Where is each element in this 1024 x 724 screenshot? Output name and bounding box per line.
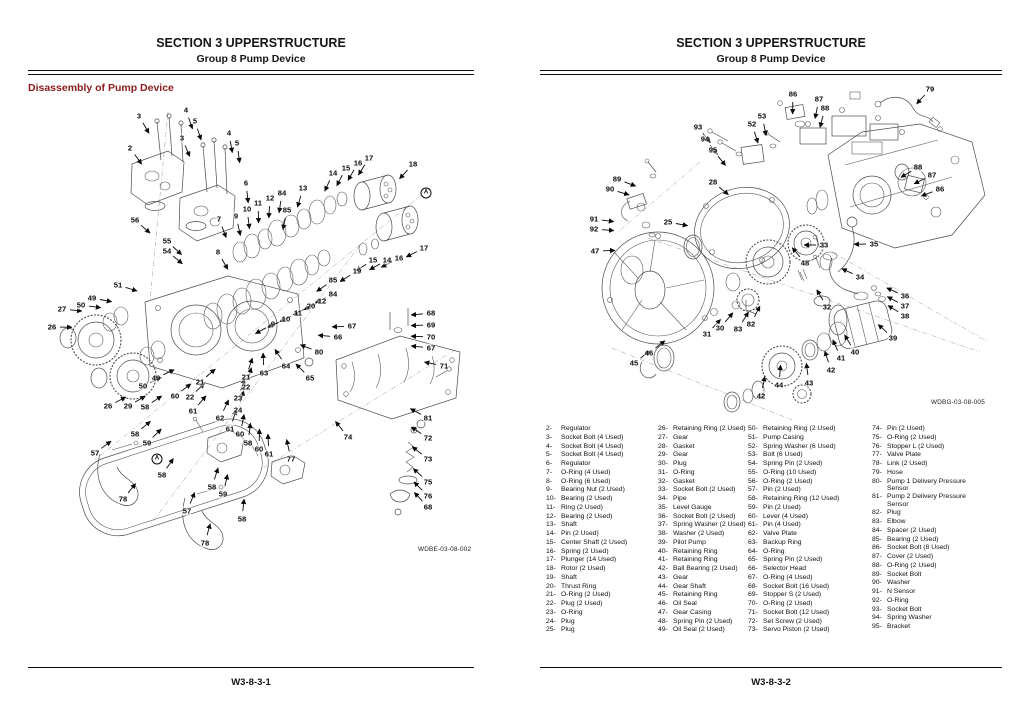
- leader-arrow: [348, 170, 354, 180]
- gear-train-sketch: [724, 225, 832, 412]
- leader-arrow: [381, 262, 392, 268]
- leader-arrow: [141, 421, 150, 429]
- leader-arrow: [780, 365, 781, 377]
- leader-arrow: [150, 378, 161, 383]
- leader-arrow: [887, 288, 898, 293]
- leader-arrow: [214, 468, 218, 480]
- leader-arrow: [317, 285, 327, 292]
- leader-arrow: [414, 482, 422, 490]
- leader-arrow: [206, 369, 215, 377]
- leader-arrow: [141, 225, 150, 233]
- leader-arrow: [280, 316, 291, 321]
- sensor-sketch: [621, 159, 656, 237]
- leader-arrow: [263, 353, 264, 365]
- leader-arrow: [337, 175, 343, 186]
- leader-arrow: [602, 220, 614, 222]
- leader-arrow: [268, 434, 269, 446]
- leader-arrow: [618, 191, 630, 195]
- leader-arrow: [725, 313, 733, 322]
- pump-casing-sketch: [145, 276, 304, 388]
- leader-arrow: [625, 182, 636, 186]
- leader-arrow: [332, 326, 344, 327]
- right-pump-exploded-sketch: [602, 92, 988, 420]
- shaft-assembly-2: [204, 250, 330, 329]
- leader-arrow: [70, 310, 82, 311]
- leader-arrow: [413, 469, 422, 477]
- leader-arrow: [921, 192, 932, 196]
- leader-arrow: [833, 340, 838, 351]
- leader-arrow: [887, 297, 898, 303]
- manual-spread: { "colors": {"heading_red": "#8e1b1b", "…: [0, 0, 1024, 724]
- leader-arrow: [336, 421, 344, 430]
- leader-arrow: [198, 396, 206, 405]
- leader-arrow: [167, 459, 174, 469]
- bracket-bolts-sketch: [708, 129, 780, 165]
- leader-arrow: [356, 264, 366, 270]
- leader-arrow: [269, 206, 270, 218]
- leader-arrow: [713, 319, 721, 328]
- leader-arrow: [223, 400, 228, 411]
- pipe-sketch: [800, 252, 868, 306]
- leader-arrow: [370, 264, 381, 270]
- leader-arrow: [888, 306, 898, 312]
- leader-arrow: [300, 345, 311, 349]
- leader-arrow: [842, 269, 853, 274]
- leader-arrow: [152, 396, 162, 403]
- leader-arrow: [676, 224, 688, 226]
- leader-arrow: [153, 429, 162, 437]
- leader-arrow: [143, 123, 149, 133]
- leader-arrow: [325, 180, 330, 191]
- leader-arrow: [173, 247, 182, 255]
- leader-arrow: [197, 129, 201, 140]
- leader-arrow: [400, 170, 408, 179]
- leader-arrow: [602, 230, 614, 231]
- small-levers-sketch: [193, 417, 305, 484]
- leader-arrow: [406, 252, 417, 257]
- pump-body-sketch: [800, 108, 985, 249]
- leader-arrow: [412, 447, 422, 454]
- leader-arrow: [411, 346, 423, 347]
- leader-arrow: [128, 484, 136, 493]
- leader-arrow: [806, 363, 808, 375]
- leader-arrow: [247, 191, 248, 203]
- leader-arrow: [298, 196, 301, 208]
- leader-arrow: [126, 287, 138, 291]
- leader-arrow: [754, 132, 758, 144]
- leader-arrow: [190, 493, 195, 504]
- leader-arrow: [817, 290, 823, 300]
- leader-arrow: [181, 384, 191, 391]
- gear-casing-sketch: [602, 232, 714, 344]
- leader-arrow: [315, 298, 326, 303]
- leader-arrow: [742, 312, 748, 322]
- leader-arrow: [189, 118, 193, 129]
- leader-arrow: [225, 475, 228, 487]
- rotor-sketch: [354, 175, 418, 255]
- callout-arrows: [60, 95, 933, 535]
- leader-arrow: [185, 145, 190, 156]
- leader-arrow: [242, 414, 244, 426]
- leader-arrow: [815, 107, 817, 119]
- leader-arrow: [358, 165, 364, 175]
- fork-links-sketch: [98, 441, 223, 550]
- leader-arrow: [173, 256, 182, 264]
- gasket-ring-sketch: [70, 410, 277, 545]
- leader-arrow: [340, 275, 350, 281]
- leader-arrow: [411, 314, 423, 315]
- exploded-diagram-sketches: [0, 0, 1024, 724]
- leader-arrow: [207, 524, 210, 536]
- leader-arrow: [222, 259, 228, 269]
- leader-arrow: [248, 217, 250, 229]
- shaft-assembly-1: [233, 192, 347, 262]
- leader-arrow: [411, 336, 423, 337]
- leader-arrow: [718, 156, 726, 165]
- leader-arrow: [710, 145, 718, 154]
- cover-sketches: [778, 101, 929, 200]
- leader-arrow: [287, 440, 290, 452]
- leader-arrow: [243, 499, 244, 511]
- leader-arrow: [238, 224, 241, 236]
- leader-arrow: [878, 325, 887, 333]
- valve-block-sketch: [305, 308, 460, 428]
- leader-arrow: [820, 116, 823, 128]
- leader-arrow: [238, 151, 240, 163]
- leader-arrow: [755, 306, 760, 317]
- seal-sketches: [640, 235, 820, 378]
- gasket-sketch: [685, 176, 799, 279]
- leader-arrow: [703, 133, 710, 143]
- leader-arrow: [318, 335, 330, 336]
- leader-arrow: [115, 397, 126, 402]
- leader-arrow: [825, 351, 829, 362]
- leader-arrow: [101, 441, 111, 448]
- leader-arrow: [296, 364, 304, 372]
- leader-arrow: [100, 300, 112, 302]
- leader-arrow: [293, 310, 304, 315]
- leader-arrow: [249, 358, 253, 369]
- leader-arrow: [655, 341, 665, 348]
- hose-sketch: [850, 92, 942, 131]
- leader-arrow: [917, 95, 925, 104]
- plug-column-sketch: [390, 427, 417, 515]
- leader-arrow: [414, 492, 422, 501]
- leader-arrow: [410, 409, 421, 415]
- leader-arrow: [640, 351, 650, 358]
- leader-arrow: [196, 383, 205, 391]
- pilot-pump-sketch: [802, 286, 894, 361]
- leader-arrow: [89, 306, 101, 308]
- leader-arrow: [230, 141, 232, 153]
- leader-arrow: [279, 201, 281, 213]
